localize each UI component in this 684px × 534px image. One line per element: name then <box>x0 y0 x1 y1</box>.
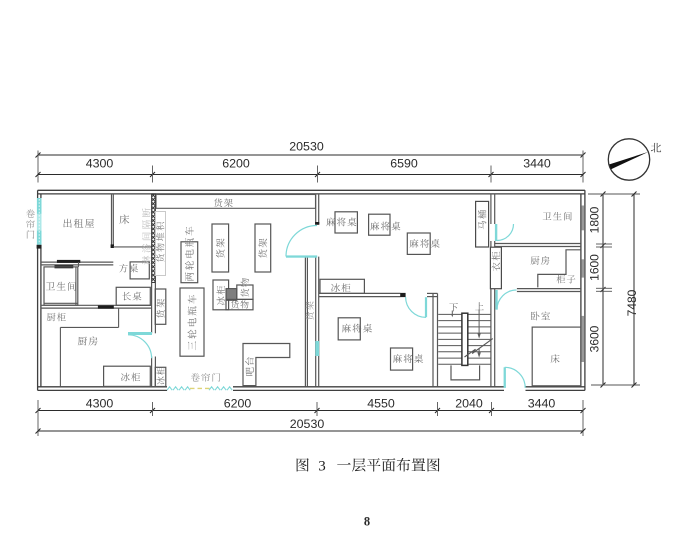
svg-text:8: 8 <box>364 515 370 529</box>
svg-text:4300: 4300 <box>86 157 114 171</box>
svg-text:20530: 20530 <box>290 417 325 431</box>
svg-text:4300: 4300 <box>86 397 114 411</box>
svg-text:6590: 6590 <box>390 157 418 171</box>
svg-text:3: 3 <box>318 459 326 475</box>
svg-text:4550: 4550 <box>367 397 395 411</box>
svg-text:20530: 20530 <box>289 140 324 154</box>
svg-text:2040: 2040 <box>455 397 483 411</box>
svg-text:3440: 3440 <box>528 397 556 411</box>
svg-text:6200: 6200 <box>224 397 252 411</box>
svg-text:3600: 3600 <box>588 325 602 352</box>
svg-text:7480: 7480 <box>625 289 639 316</box>
svg-text:3440: 3440 <box>523 157 551 171</box>
svg-text:1600: 1600 <box>588 254 602 281</box>
svg-text:1800: 1800 <box>588 206 602 233</box>
svg-text:6200: 6200 <box>222 157 250 171</box>
